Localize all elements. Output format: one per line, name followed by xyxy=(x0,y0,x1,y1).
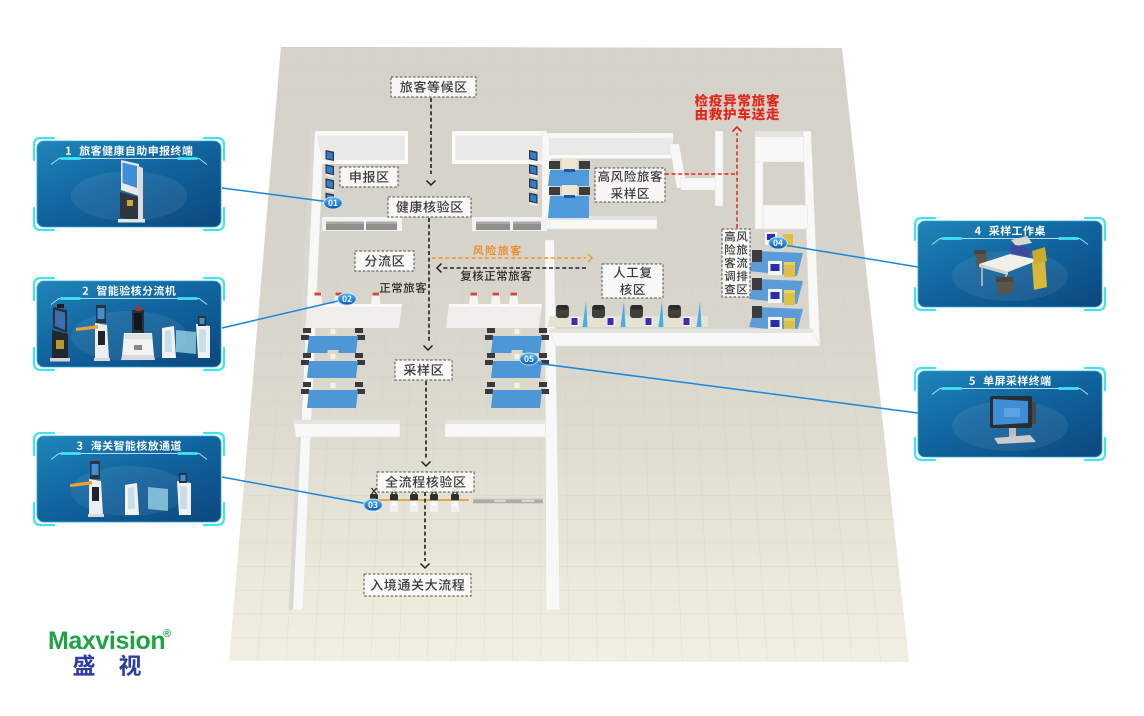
svg-text:Maxvision: Maxvision xyxy=(48,627,165,655)
svg-text:®: ® xyxy=(163,628,171,640)
